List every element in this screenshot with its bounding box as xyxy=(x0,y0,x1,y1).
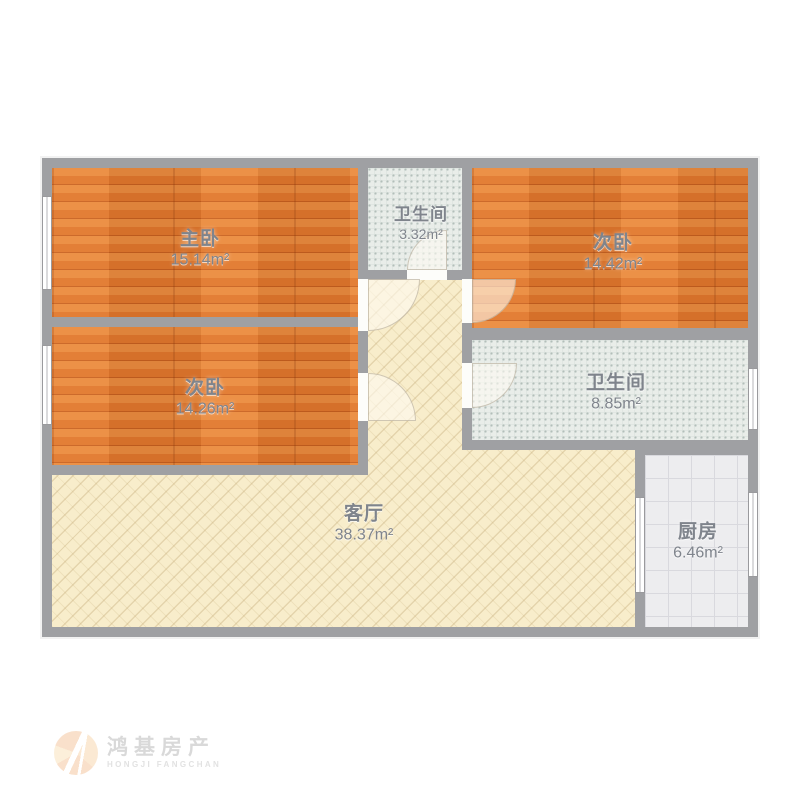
brand-logo-icon xyxy=(54,731,98,775)
room-bedroom-right xyxy=(472,168,748,328)
wall-outer-top xyxy=(42,158,758,168)
wall-kitchen-top xyxy=(635,445,758,455)
door-bathroom-large xyxy=(462,363,472,408)
room-kitchen xyxy=(645,455,748,627)
brand-name-en: HONGJI FANGCHAN xyxy=(107,760,221,770)
wall-master-bottom xyxy=(42,317,368,327)
room-master-bedroom xyxy=(52,168,358,317)
room-bedroom-left xyxy=(52,327,358,465)
wall-outer-bottom xyxy=(42,627,758,637)
door-master-bedroom xyxy=(358,279,368,331)
window-bedroom-left xyxy=(42,345,52,425)
window-bathroom-large xyxy=(748,368,758,430)
brand-watermark: 鸿基房产 HONGJI FANGCHAN xyxy=(54,731,221,775)
brand-text: 鸿基房产 HONGJI FANGCHAN xyxy=(107,736,221,770)
brand-name-cn: 鸿基房产 xyxy=(107,736,221,760)
window-kitchen xyxy=(748,492,758,577)
room-bathroom-large xyxy=(472,340,748,440)
window-master-bedroom xyxy=(42,196,52,290)
door-bedroom-left xyxy=(358,373,368,421)
door-bedroom-right xyxy=(462,279,472,323)
door-kitchen-passage xyxy=(635,497,645,593)
floorplan: 主卧 15.14m² 卫生间 3.32m² 次卧 14.42m² 次卧 14.2… xyxy=(0,0,800,800)
wall-bedroom-right-bottom xyxy=(462,328,758,340)
wall-bedroom-left-bottom xyxy=(42,465,368,475)
